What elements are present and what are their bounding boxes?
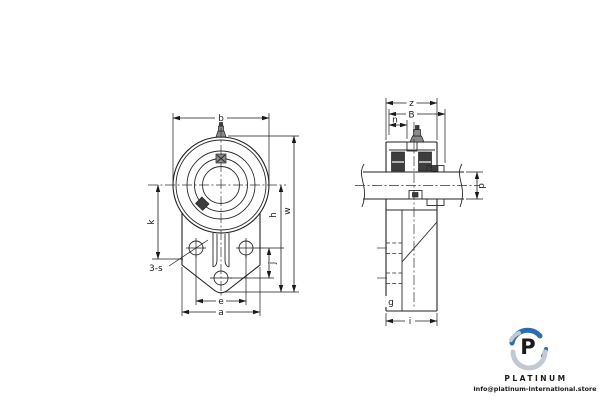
dim-label-B: B xyxy=(408,111,414,121)
dim-label-p: p xyxy=(477,183,487,189)
dim-label-g: g xyxy=(388,298,394,308)
dim-label-b: b xyxy=(218,114,224,124)
dim-label-k: k xyxy=(147,219,157,225)
dim-label-w: w xyxy=(283,207,293,214)
screw-callout-label: 3-s xyxy=(149,264,163,274)
dim-label-a: a xyxy=(218,308,224,318)
dimension-n: n xyxy=(389,116,407,140)
dim-label-z: z xyxy=(409,99,414,109)
dimension-j: j xyxy=(230,248,284,278)
bearing-unit-drawing: b k h w j e xyxy=(0,0,600,400)
dimension-h: h xyxy=(224,185,299,292)
front-set-screw-lower-left xyxy=(196,197,209,210)
dim-label-j: j xyxy=(268,262,278,266)
dim-label-n: n xyxy=(392,116,398,126)
logo-monogram: P xyxy=(520,335,535,359)
dim-label-h: h xyxy=(269,212,279,218)
platinum-logo-icon: P xyxy=(511,330,546,368)
dim-label-e: e xyxy=(218,297,224,307)
logo-email-text: info@platinum-international.store xyxy=(473,385,597,393)
dimension-g: g xyxy=(386,296,397,308)
side-hidden-holes xyxy=(377,243,402,284)
technical-drawing-page: b k h w j e xyxy=(0,0,600,400)
side-grease-nipple-icon xyxy=(410,126,424,143)
dimension-i: i xyxy=(386,313,437,327)
side-view: z B n p g xyxy=(355,97,487,327)
front-view: b k h w j e xyxy=(147,110,299,318)
dim-label-i: i xyxy=(409,317,412,327)
logo-brand-text: PLATINUM xyxy=(504,374,567,383)
side-bearing-section xyxy=(392,142,432,171)
brand-logo: P PLATINUM info@platinum-international.s… xyxy=(473,330,597,393)
dimension-p: p xyxy=(466,172,487,199)
